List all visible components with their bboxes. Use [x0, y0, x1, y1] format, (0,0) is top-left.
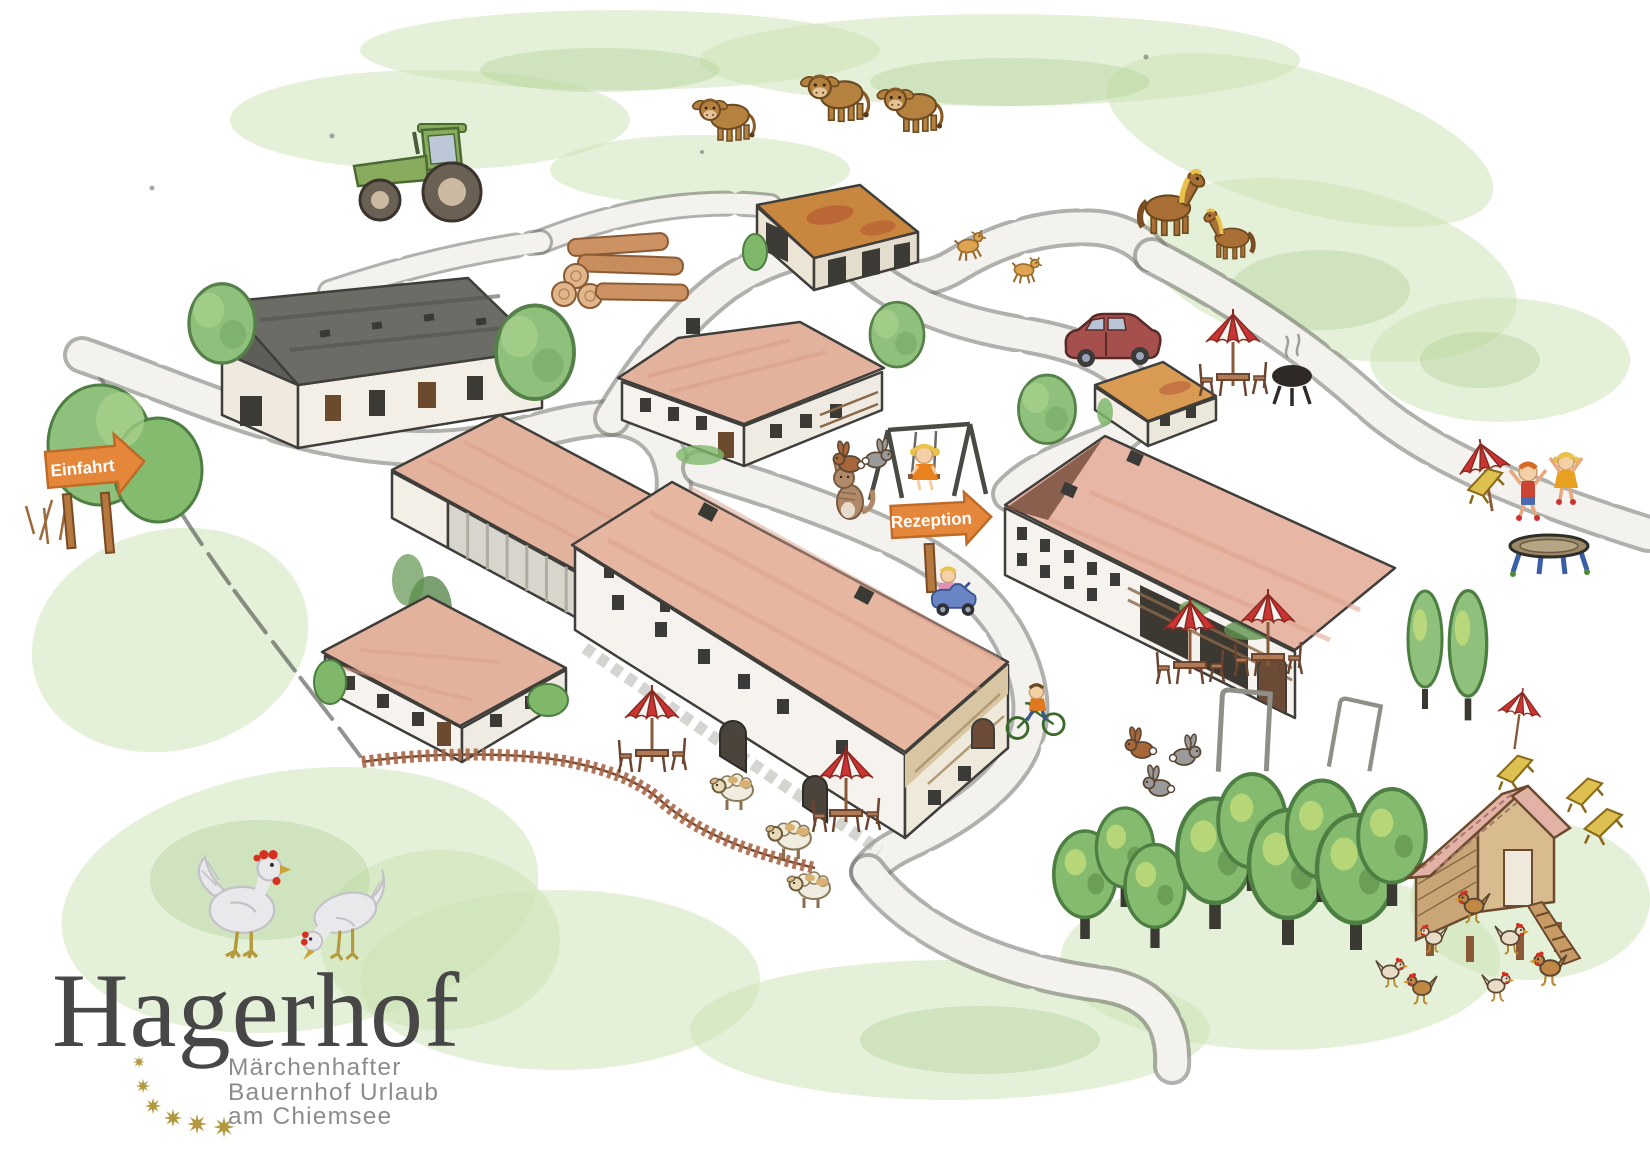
beach-lounger — [1566, 777, 1604, 813]
logo-tagline-line3: am Chiemsee — [228, 1103, 392, 1130]
guest-house — [1005, 436, 1395, 718]
tree — [189, 284, 255, 363]
farm-map-illustration: Einfahrt Rezeption — [0, 0, 1650, 1166]
rabbit — [1126, 727, 1157, 758]
logo-tagline-line2: Bauernhof Urlaub — [228, 1079, 439, 1106]
rabbit — [1170, 734, 1201, 765]
goat — [1011, 256, 1042, 285]
logo-title: Hagerhof — [52, 952, 460, 1069]
south-west-house — [314, 596, 568, 762]
poplar-tree — [1449, 591, 1486, 721]
umbrella-seating — [619, 685, 686, 772]
wood-pile — [552, 233, 688, 308]
rabbit — [862, 438, 891, 468]
trampoline — [1510, 535, 1590, 577]
poplar-tree — [1408, 591, 1442, 709]
logo-tagline-line1: Märchenhafter — [228, 1054, 402, 1081]
parked-car — [1066, 314, 1161, 367]
tree — [1019, 375, 1076, 443]
swing-with-girl — [870, 424, 986, 500]
rabbit — [1144, 765, 1175, 796]
tree — [870, 302, 924, 367]
tree — [496, 305, 574, 399]
sheep — [786, 872, 830, 908]
swing-frame — [1329, 698, 1381, 772]
calf — [692, 99, 755, 141]
farm-map-page: Einfahrt Rezeption — [0, 0, 1650, 1166]
sheep — [709, 774, 753, 810]
beach-parasol — [1493, 685, 1544, 752]
